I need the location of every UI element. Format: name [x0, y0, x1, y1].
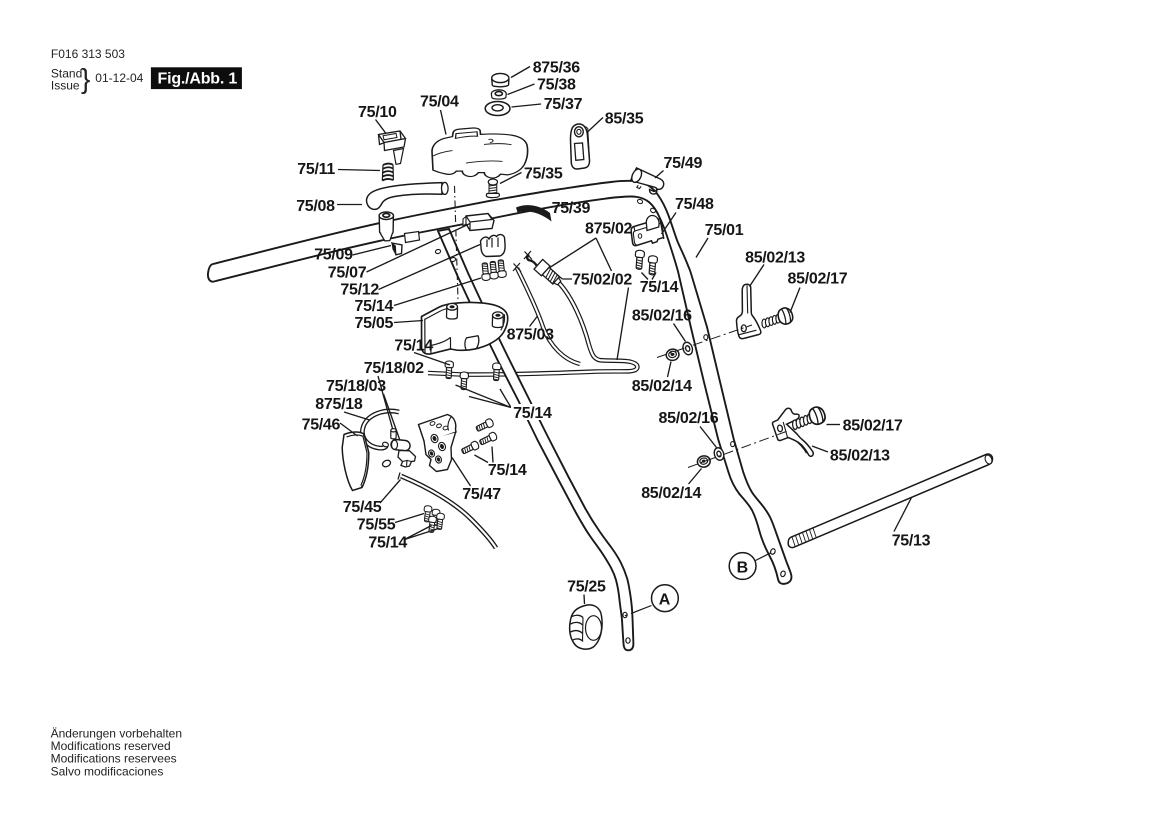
svg-text:75/13: 75/13	[892, 533, 931, 550]
svg-text:75/38: 75/38	[537, 77, 576, 94]
svg-text:75/07: 75/07	[328, 264, 367, 281]
svg-text:Salvo modificaciones: Salvo modificaciones	[51, 764, 164, 778]
svg-text:85/02/14: 85/02/14	[632, 378, 692, 395]
svg-text:75/14: 75/14	[640, 279, 679, 296]
svg-text:75/14: 75/14	[513, 405, 552, 422]
svg-text:75/55: 75/55	[357, 516, 396, 533]
svg-text:Issue: Issue	[51, 79, 80, 93]
svg-text:85/02/14: 85/02/14	[641, 485, 701, 502]
svg-text:75/46: 75/46	[302, 417, 341, 434]
svg-text:F016 313 503: F016 313 503	[51, 47, 125, 61]
svg-text:85/02/16: 85/02/16	[659, 410, 719, 427]
svg-text:75/18/02: 75/18/02	[364, 360, 424, 377]
svg-text:75/04: 75/04	[420, 94, 459, 111]
svg-text:85/35: 85/35	[605, 111, 644, 128]
svg-text:75/48: 75/48	[675, 196, 714, 213]
svg-text:75/39: 75/39	[552, 200, 591, 217]
svg-text:85/02/13: 85/02/13	[830, 447, 890, 464]
svg-text:75/08: 75/08	[296, 198, 335, 215]
svg-text:}: }	[81, 63, 90, 94]
svg-text:875/18: 875/18	[315, 396, 363, 413]
svg-text:75/05: 75/05	[355, 315, 394, 332]
svg-text:875/36: 875/36	[533, 60, 581, 77]
svg-text:75/37: 75/37	[544, 96, 583, 113]
svg-text:75/14: 75/14	[488, 462, 527, 479]
svg-text:75/14: 75/14	[368, 535, 407, 552]
svg-text:75/02/02: 75/02/02	[572, 272, 632, 289]
svg-text:75/45: 75/45	[343, 499, 382, 516]
svg-text:875/03: 875/03	[507, 327, 555, 344]
svg-text:75/14: 75/14	[355, 298, 394, 315]
svg-text:75/10: 75/10	[358, 104, 397, 121]
svg-text:75/47: 75/47	[462, 486, 501, 503]
svg-text:85/02/13: 85/02/13	[745, 249, 805, 266]
svg-text:75/12: 75/12	[340, 282, 379, 299]
svg-text:875/02: 875/02	[585, 221, 633, 238]
svg-text:75/35: 75/35	[524, 166, 563, 183]
svg-text:01-12-04: 01-12-04	[95, 71, 143, 85]
svg-text:75/25: 75/25	[567, 578, 606, 595]
svg-text:A: A	[659, 592, 671, 609]
svg-text:B: B	[737, 559, 748, 576]
svg-text:85/02/17: 85/02/17	[788, 271, 848, 288]
svg-text:Fig./Abb. 1: Fig./Abb. 1	[158, 71, 238, 88]
svg-text:75/49: 75/49	[664, 155, 703, 172]
svg-text:75/11: 75/11	[297, 161, 335, 178]
svg-text:85/02/16: 85/02/16	[632, 307, 692, 324]
svg-text:75/18/03: 75/18/03	[326, 378, 386, 395]
svg-text:85/02/17: 85/02/17	[843, 417, 903, 434]
svg-text:75/09: 75/09	[314, 247, 353, 264]
svg-text:75/14: 75/14	[394, 338, 433, 355]
svg-text:75/01: 75/01	[705, 222, 744, 239]
